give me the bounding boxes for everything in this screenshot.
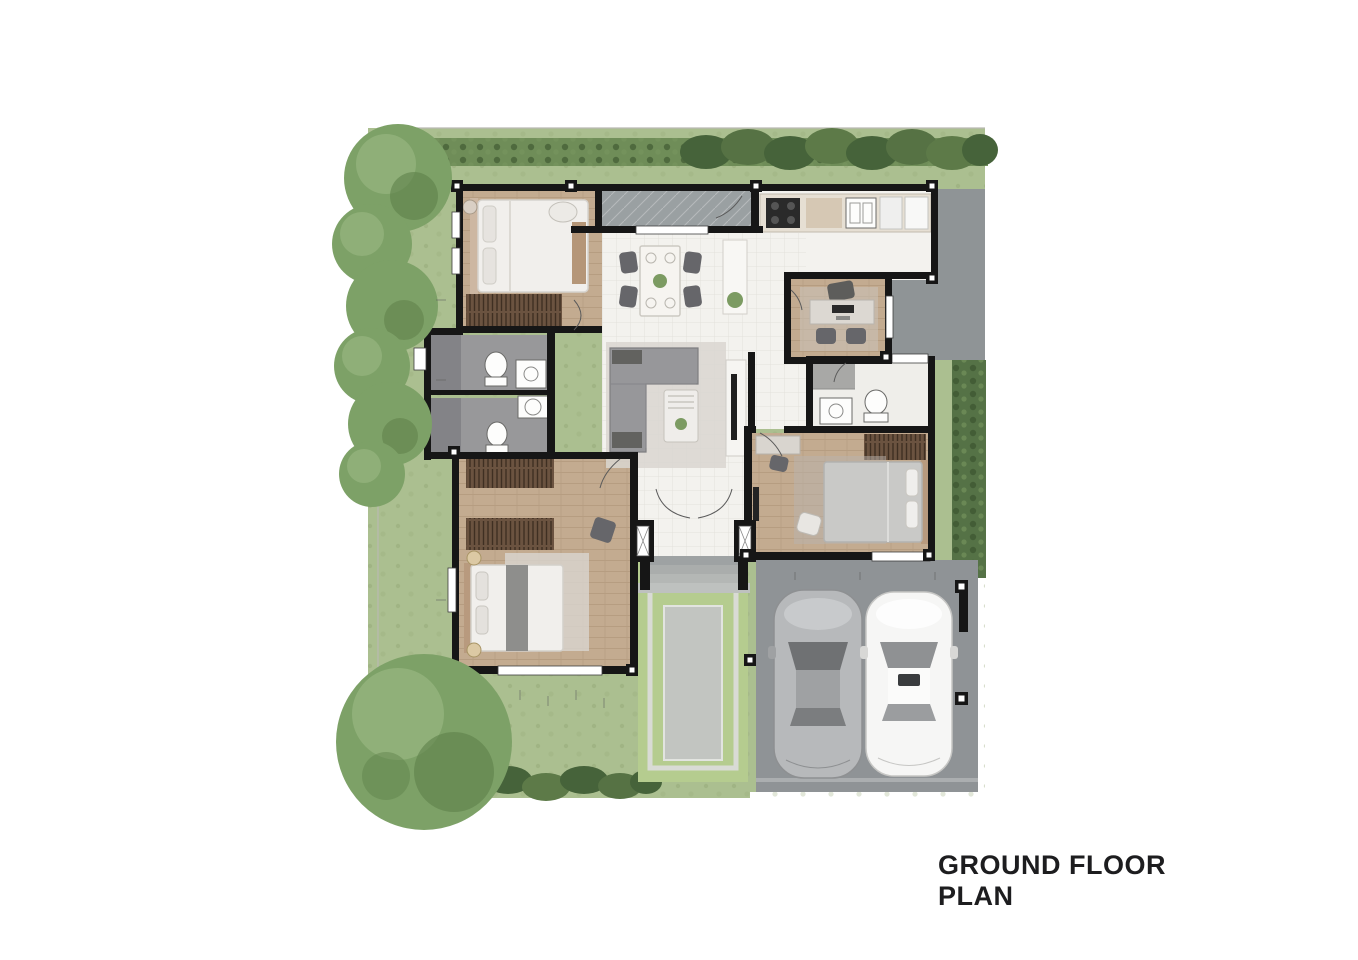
column — [926, 272, 938, 284]
pool — [664, 606, 722, 760]
large-corner-tree — [336, 654, 512, 830]
bedside-lamp — [467, 643, 481, 657]
toilet-3-tank — [864, 413, 888, 422]
bed-3-pillow — [906, 469, 918, 496]
tv — [731, 374, 737, 440]
study — [800, 280, 878, 351]
counter-appliance — [880, 197, 902, 229]
floor-plan-drawing — [0, 0, 1358, 960]
window — [892, 354, 928, 363]
side-mirror — [950, 646, 958, 659]
hood-highlight — [876, 599, 942, 629]
bed-2-headboard — [464, 563, 471, 653]
windshield — [880, 642, 938, 668]
carport-gate-bar — [959, 588, 968, 632]
monitor — [832, 305, 854, 313]
window — [886, 296, 893, 338]
window — [452, 212, 460, 238]
dining-chair — [683, 251, 703, 274]
bed-1-pillow — [483, 206, 496, 242]
counter-top — [806, 198, 842, 228]
hood-highlight — [784, 598, 852, 630]
sink-1 — [516, 360, 546, 388]
column — [565, 180, 577, 192]
dining-chair — [683, 285, 703, 308]
burner — [787, 202, 795, 210]
column — [750, 180, 762, 192]
desk-3 — [756, 436, 800, 454]
car-roof — [796, 670, 840, 708]
stool — [549, 202, 577, 222]
burner — [787, 216, 795, 224]
column — [626, 664, 638, 676]
right-hedge — [935, 360, 986, 578]
rear-window — [882, 704, 936, 721]
floor-plan-page: GROUND FLOOR PLAN — [0, 0, 1358, 960]
bed-3-pillow — [906, 501, 918, 528]
column — [740, 549, 752, 561]
living-area — [606, 342, 746, 468]
study-chair — [846, 328, 866, 344]
column — [451, 180, 463, 192]
sink-3 — [820, 398, 852, 424]
coffee-table — [664, 390, 698, 442]
entry-porch — [638, 556, 750, 593]
window — [448, 568, 456, 612]
column — [926, 180, 938, 192]
bathroom-1-shower — [431, 335, 461, 392]
dining-chair — [619, 285, 639, 308]
fridge — [905, 197, 928, 229]
carport-edge-line — [756, 778, 978, 782]
toilet-2 — [487, 422, 507, 446]
sofa-pillow — [612, 350, 642, 364]
window — [452, 248, 460, 274]
plan-title: GROUND FLOOR PLAN — [938, 850, 1198, 912]
rear-window — [790, 708, 846, 726]
column — [923, 549, 935, 561]
window — [414, 348, 426, 370]
bathroom-2-shower — [431, 398, 461, 454]
column — [880, 351, 892, 363]
window — [498, 666, 602, 675]
toilet-3 — [865, 390, 887, 414]
column — [955, 692, 968, 705]
floor-plant — [727, 292, 743, 308]
burner — [771, 216, 779, 224]
column — [448, 446, 460, 458]
silver-car — [768, 590, 868, 778]
table-plant — [675, 418, 687, 430]
stove — [766, 198, 800, 228]
sunroof — [898, 674, 920, 686]
wall-tv — [753, 487, 759, 521]
toilet-1-tank — [485, 377, 507, 386]
kitchen — [760, 194, 931, 232]
bed-2-pillow — [476, 572, 488, 600]
table-plant — [653, 274, 667, 288]
window — [636, 226, 708, 234]
bathroom-3-shower — [813, 363, 855, 389]
side-mirror — [768, 646, 776, 659]
white-car — [860, 592, 958, 776]
windshield — [788, 642, 848, 670]
bed-2-pillow — [476, 606, 488, 634]
column — [955, 580, 968, 593]
nightstand-lamp — [463, 200, 477, 214]
window — [872, 552, 930, 561]
bedside-lamp — [467, 551, 481, 565]
sofa-pillow — [612, 432, 642, 448]
burner — [771, 202, 779, 210]
side-mirror — [860, 646, 868, 659]
bed-2-runner — [506, 565, 528, 651]
bed-1-pillow — [483, 248, 496, 284]
toilet-1 — [485, 352, 507, 378]
column — [744, 654, 756, 666]
dining-chair — [619, 251, 639, 274]
keyboard — [836, 316, 850, 320]
study-chair — [816, 328, 836, 344]
